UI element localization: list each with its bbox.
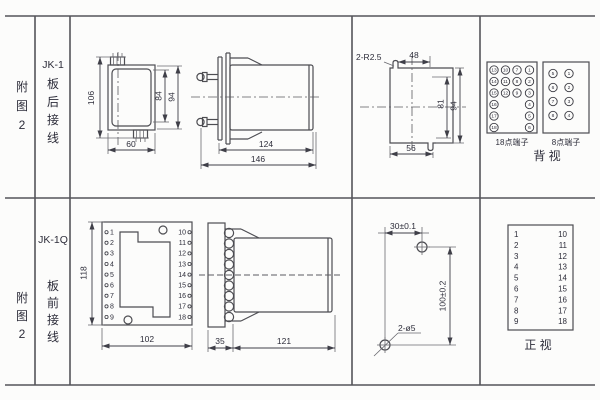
terminal-number: 14 xyxy=(178,272,186,279)
fig-label-char: 附 xyxy=(16,80,28,94)
terminal-number: 1 xyxy=(110,230,114,237)
terminal-number: 4 xyxy=(528,102,531,108)
terminal-block-8pt: 56781234 xyxy=(549,69,573,119)
dim-56: 56 xyxy=(406,143,416,153)
front-view-label: 正 视 xyxy=(524,337,551,352)
fig-label-char: 2 xyxy=(19,327,26,341)
terminal-number: 15 xyxy=(558,285,567,294)
dim-94: 94 xyxy=(167,92,177,102)
terminal-dot xyxy=(188,305,191,308)
terminal-number: 11 xyxy=(179,240,186,247)
terminal-number: 16 xyxy=(558,295,567,304)
terminal-number: 10 xyxy=(558,230,567,239)
jk1-side-view: 124 146 xyxy=(191,53,322,169)
terminal-number: 5 xyxy=(528,114,531,120)
dim-124: 124 xyxy=(259,139,273,149)
terminal-number: 17 xyxy=(491,114,497,120)
wiring-char: 前 xyxy=(47,295,59,310)
terminal-number: 3 xyxy=(514,252,519,261)
rear-view-label: 背 视 xyxy=(533,148,560,163)
wiring-char: 后 xyxy=(47,95,59,109)
terminal-number: 3 xyxy=(528,91,531,97)
terminal-dot xyxy=(105,231,108,234)
hole-spec-label: 2-ø5 xyxy=(398,323,416,333)
wiring-char: 线 xyxy=(47,330,59,344)
wiring-char: 线 xyxy=(47,131,59,145)
terminal-dot xyxy=(188,273,191,276)
terminal-number: 10 xyxy=(178,230,186,237)
terminal-number: 17 xyxy=(558,306,567,315)
terminal-number: 11 xyxy=(559,241,568,250)
wiring-char: 板 xyxy=(47,77,59,91)
terminal-number: 3 xyxy=(568,99,571,105)
cutout-radius-label: 2-R2.5 xyxy=(356,52,382,62)
terminal-number: 10 xyxy=(503,68,509,74)
terminal-dot xyxy=(105,273,108,276)
terminal-dot xyxy=(188,241,191,244)
dim-106: 106 xyxy=(86,91,96,105)
dim-118: 118 xyxy=(79,266,89,280)
terminal-dot xyxy=(188,262,191,265)
terminal-number: 4 xyxy=(110,261,114,268)
terminal-number: 15 xyxy=(178,283,186,290)
table-right-numbers: 101112131415161718 xyxy=(558,230,567,326)
terminal-number: 2 xyxy=(514,241,519,250)
terminal-number: 2 xyxy=(528,79,531,85)
model-label: JK-1 xyxy=(42,59,64,71)
terminal-number: 7 xyxy=(516,68,519,74)
terminal-number: 13 xyxy=(558,263,567,272)
dim-146: 146 xyxy=(251,154,265,164)
front-left-terminals: 123456789 xyxy=(105,230,114,322)
terminal-number: 1 xyxy=(528,68,531,74)
fig-label-char: 附 xyxy=(16,291,28,305)
rear-view-terminals: 131415161718101112789123456 56781234 18点… xyxy=(487,62,589,163)
terminal-number: 15 xyxy=(491,91,497,97)
technical-drawing-canvas: 附 图 2 JK-1 板 后 接 线 106 84 xyxy=(0,0,600,400)
dim-94-cutout: 94 xyxy=(449,101,459,111)
terminal-number: 5 xyxy=(552,71,555,77)
terminal-dot xyxy=(105,294,108,297)
terminal-dot xyxy=(188,284,191,287)
fig-label-char: 2 xyxy=(19,118,26,132)
terminal-number: 12 xyxy=(503,91,509,97)
terminal-number: 8 xyxy=(516,79,519,85)
terminal-dot xyxy=(188,252,191,255)
label-8pt: 8点端子 xyxy=(552,137,580,147)
drawing-sheet: 附 图 2 JK-1 板 后 接 线 106 84 xyxy=(0,0,600,400)
terminal-number: 9 xyxy=(514,317,519,326)
terminal-number: 7 xyxy=(110,293,114,300)
table-left-numbers: 123456789 xyxy=(514,230,519,326)
terminal-dot xyxy=(105,284,108,287)
terminal-number: 13 xyxy=(491,68,497,74)
label-18pt: 18点端子 xyxy=(496,137,529,147)
terminal-number: 8 xyxy=(110,304,114,311)
terminal-number: 7 xyxy=(514,295,519,304)
dim-60: 60 xyxy=(126,139,136,149)
drilling-plan: 30±0.1 100±0.2 2-ø5 xyxy=(374,221,456,356)
terminal-dot xyxy=(188,231,191,234)
terminal-number: 8 xyxy=(514,306,519,315)
terminal-number: 12 xyxy=(558,252,567,261)
terminal-dot xyxy=(105,241,108,244)
terminal-number: 16 xyxy=(178,293,186,300)
terminal-number: 8 xyxy=(552,113,555,119)
terminal-dot xyxy=(105,252,108,255)
terminal-number: 2 xyxy=(110,240,114,247)
terminal-number: 11 xyxy=(503,79,508,85)
terminal-number: 18 xyxy=(178,314,186,321)
terminal-number: 14 xyxy=(558,274,567,283)
terminal-number: 6 xyxy=(552,85,555,91)
dim-100: 100±0.2 xyxy=(438,280,448,311)
model-label: JK-1Q xyxy=(38,234,68,246)
jk1q-front-view: 123456789 101112131415161718 118 102 xyxy=(79,222,193,350)
terminal-number: 4 xyxy=(514,263,519,272)
dim-102: 102 xyxy=(140,334,154,344)
dim-30: 30±0.1 xyxy=(390,221,416,231)
fig-label-char: 图 xyxy=(16,309,28,323)
terminal-number: 16 xyxy=(491,102,497,108)
terminal-number: 4 xyxy=(568,113,571,119)
terminal-dot xyxy=(188,294,191,297)
dim-81: 81 xyxy=(436,99,446,109)
terminal-number: 9 xyxy=(110,314,114,321)
row1-headers: 附 图 2 JK-1 板 后 接 线 xyxy=(16,59,64,145)
dim-84: 84 xyxy=(154,91,164,101)
terminal-dot xyxy=(188,315,191,318)
dim-35: 35 xyxy=(215,336,225,346)
terminal-number: 6 xyxy=(528,125,531,131)
terminal-number: 9 xyxy=(516,91,519,97)
terminal-number: 5 xyxy=(110,272,114,279)
terminal-block-18pt: 131415161718101112789123456 xyxy=(490,66,534,132)
jk1-front-view: 106 84 94 60 xyxy=(86,52,182,154)
wiring-char: 接 xyxy=(47,112,59,127)
terminal-dot xyxy=(105,315,108,318)
terminal-dot xyxy=(105,262,108,265)
front-right-terminals: 101112131415161718 xyxy=(178,230,191,322)
dim-48: 48 xyxy=(409,50,419,60)
row2-headers: 附 图 2 JK-1Q 板 前 接 线 xyxy=(16,234,68,344)
terminal-number: 1 xyxy=(514,230,519,239)
wiring-char: 板 xyxy=(47,279,59,293)
wiring-char: 接 xyxy=(47,312,59,327)
terminal-number: 6 xyxy=(110,283,114,290)
terminal-number: 18 xyxy=(491,125,497,131)
terminal-number: 7 xyxy=(552,99,555,105)
terminal-number: 6 xyxy=(514,285,519,294)
terminal-number: 12 xyxy=(178,251,186,258)
terminal-number: 1 xyxy=(568,71,571,77)
terminal-number: 18 xyxy=(558,317,567,326)
terminal-number: 2 xyxy=(568,85,571,91)
terminal-number: 5 xyxy=(514,274,519,283)
terminal-number: 17 xyxy=(178,304,186,311)
front-view-terminal-table: 123456789 101112131415161718 正 视 xyxy=(508,225,573,352)
panel-cutout-view: 2-R2.5 48 81 94 56 xyxy=(356,50,466,158)
dim-121: 121 xyxy=(277,336,291,346)
terminal-dot xyxy=(105,305,108,308)
terminal-number: 13 xyxy=(178,261,186,268)
jk1q-side-view: 35 121 xyxy=(199,223,340,352)
terminal-number: 14 xyxy=(491,79,497,85)
terminal-number: 3 xyxy=(110,251,114,258)
fig-label-char: 图 xyxy=(16,99,28,113)
